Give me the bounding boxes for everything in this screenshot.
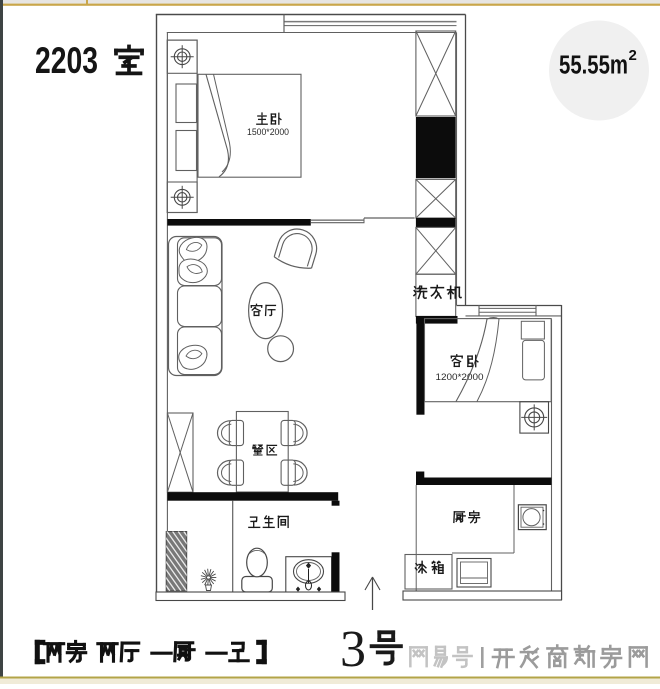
svg-text:2: 2	[629, 47, 637, 64]
svg-text:2203: 2203	[35, 40, 98, 81]
svg-text:3: 3	[340, 621, 366, 678]
svg-text:1500*2000: 1500*2000	[247, 127, 289, 137]
svg-text:1200*2000: 1200*2000	[436, 372, 484, 382]
svg-text:55.55m: 55.55m	[559, 52, 628, 80]
